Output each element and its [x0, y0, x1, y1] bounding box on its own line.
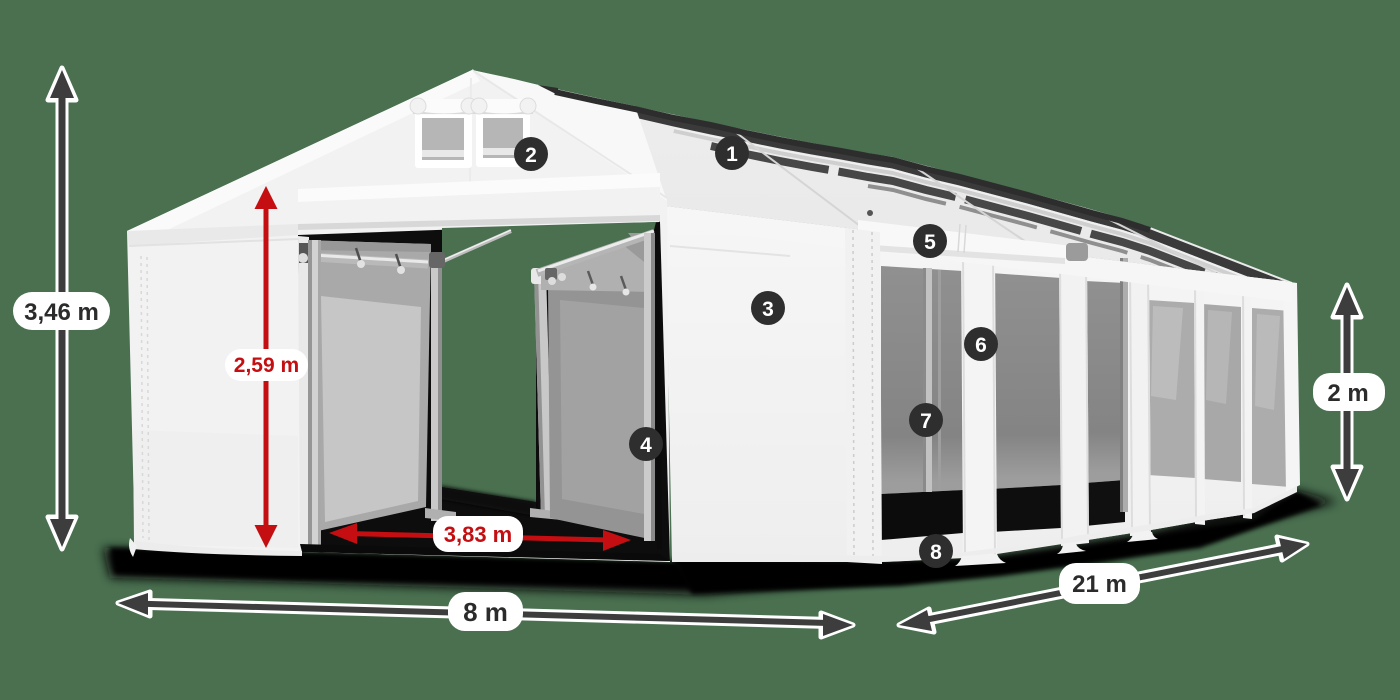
svg-text:8 m: 8 m: [463, 597, 508, 627]
svg-text:3,83 m: 3,83 m: [444, 522, 513, 547]
svg-text:6: 6: [975, 334, 987, 357]
svg-text:5: 5: [924, 231, 936, 254]
svg-text:2: 2: [525, 144, 537, 167]
svg-text:3,46 m: 3,46 m: [24, 299, 99, 326]
svg-text:2,59 m: 2,59 m: [234, 354, 299, 377]
svg-text:2 m: 2 m: [1327, 380, 1368, 407]
svg-text:1: 1: [726, 143, 738, 166]
svg-text:4: 4: [640, 434, 652, 457]
svg-text:8: 8: [930, 541, 942, 564]
svg-text:7: 7: [920, 410, 932, 433]
svg-text:21 m: 21 m: [1072, 571, 1127, 598]
svg-text:3: 3: [762, 298, 774, 321]
